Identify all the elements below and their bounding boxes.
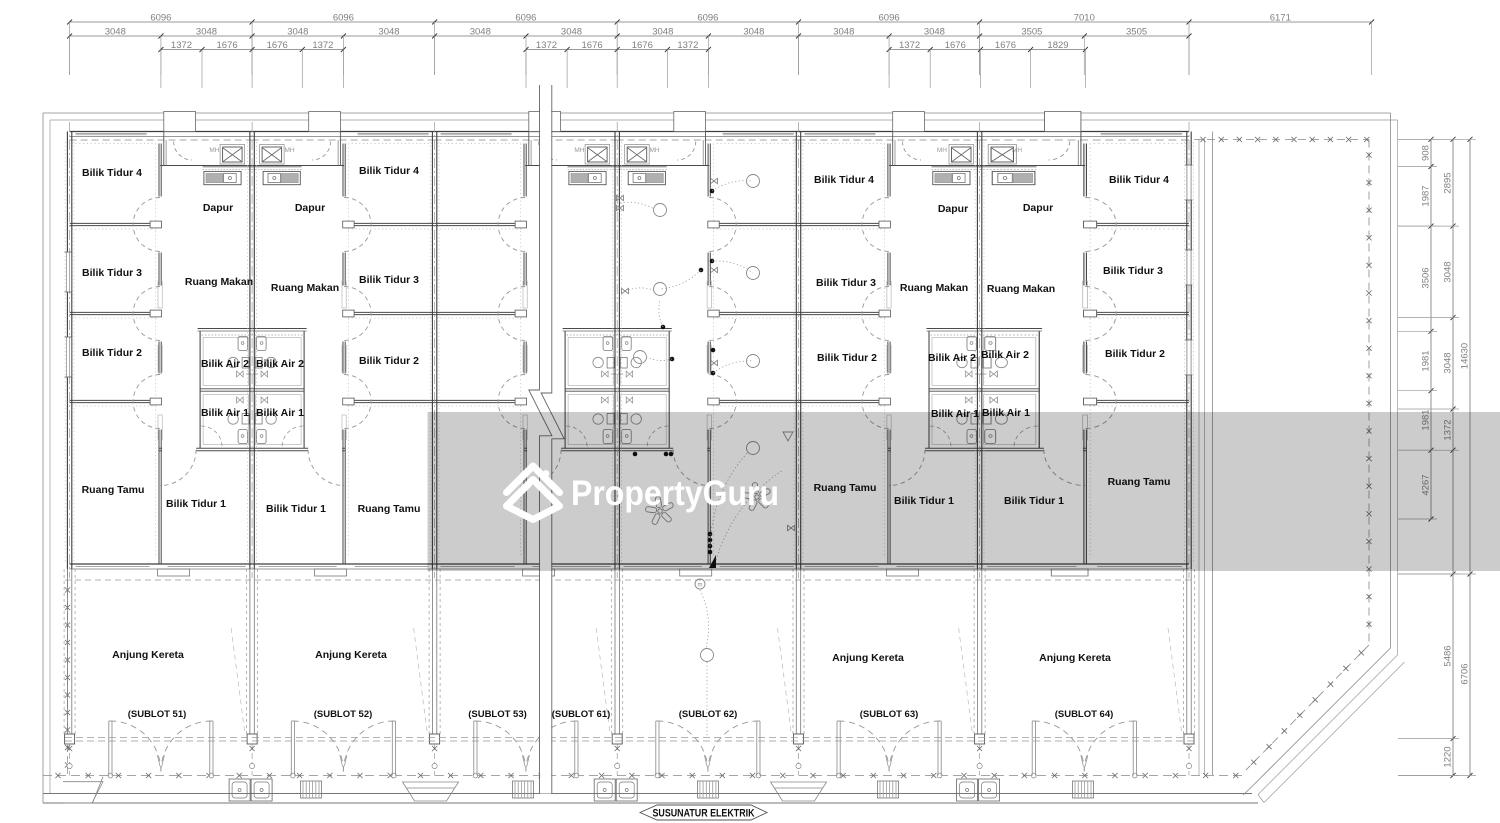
svg-text:1220: 1220 bbox=[1443, 746, 1454, 767]
svg-text:1676: 1676 bbox=[267, 40, 288, 51]
svg-text:3048: 3048 bbox=[196, 27, 217, 38]
svg-text:3048: 3048 bbox=[470, 27, 491, 38]
svg-text:2895: 2895 bbox=[1443, 172, 1454, 193]
svg-text:Bilik Tidur 1: Bilik Tidur 1 bbox=[266, 503, 326, 515]
svg-text:6706: 6706 bbox=[1460, 663, 1471, 684]
svg-text:Bilik Tidur 4: Bilik Tidur 4 bbox=[359, 165, 419, 177]
svg-text:6171: 6171 bbox=[1270, 13, 1291, 24]
svg-text:7010: 7010 bbox=[1074, 13, 1095, 24]
svg-text:1676: 1676 bbox=[995, 40, 1016, 51]
svg-text:PropertyGuru: PropertyGuru bbox=[571, 474, 779, 513]
svg-text:Bilik Tidur 2: Bilik Tidur 2 bbox=[1105, 348, 1165, 360]
svg-text:14630: 14630 bbox=[1460, 343, 1471, 369]
svg-text:Bilik Tidur 2: Bilik Tidur 2 bbox=[359, 355, 419, 367]
svg-text:(SUBLOT 62): (SUBLOT 62) bbox=[679, 709, 738, 720]
svg-text:Dapur: Dapur bbox=[203, 202, 233, 214]
svg-text:MH: MH bbox=[209, 147, 219, 154]
svg-text:Bilik Air 1: Bilik Air 1 bbox=[256, 407, 304, 419]
svg-text:3048: 3048 bbox=[561, 27, 582, 38]
svg-text:1372: 1372 bbox=[899, 40, 920, 51]
svg-text:1676: 1676 bbox=[217, 40, 238, 51]
svg-text:3048: 3048 bbox=[378, 27, 399, 38]
svg-text:(SUBLOT 64): (SUBLOT 64) bbox=[1055, 709, 1114, 720]
svg-text:Bilik Tidur 4: Bilik Tidur 4 bbox=[814, 174, 874, 186]
svg-text:Bilik Tidur 3: Bilik Tidur 3 bbox=[816, 277, 876, 289]
svg-text:SUSUNATUR ELEKTRIK: SUSUNATUR ELEKTRIK bbox=[653, 808, 756, 820]
svg-text:MH: MH bbox=[650, 147, 660, 154]
svg-text:3048: 3048 bbox=[924, 27, 945, 38]
svg-text:Bilik Tidur 1: Bilik Tidur 1 bbox=[166, 498, 226, 510]
svg-text:3048: 3048 bbox=[105, 27, 126, 38]
svg-text:3048: 3048 bbox=[1443, 352, 1454, 373]
svg-text:m: m bbox=[698, 583, 703, 589]
svg-text:6096: 6096 bbox=[697, 13, 718, 24]
svg-text:3048: 3048 bbox=[287, 27, 308, 38]
svg-text:Bilik Tidur 2: Bilik Tidur 2 bbox=[817, 352, 877, 364]
svg-text:Bilik Air 2: Bilik Air 2 bbox=[928, 352, 976, 364]
svg-text:Ruang Tamu: Ruang Tamu bbox=[358, 503, 421, 515]
svg-text:MH: MH bbox=[574, 147, 584, 154]
svg-text:1372: 1372 bbox=[312, 40, 333, 51]
svg-text:(SUBLOT 51): (SUBLOT 51) bbox=[128, 709, 187, 720]
svg-text:6096: 6096 bbox=[515, 13, 536, 24]
svg-text:(SUBLOT 63): (SUBLOT 63) bbox=[860, 709, 919, 720]
svg-text:Ruang Makan: Ruang Makan bbox=[900, 282, 968, 294]
svg-text:Ruang Makan: Ruang Makan bbox=[185, 276, 253, 288]
svg-text:MH: MH bbox=[937, 147, 947, 154]
svg-text:1987: 1987 bbox=[1421, 185, 1432, 206]
svg-text:Ruang Makan: Ruang Makan bbox=[987, 283, 1055, 295]
svg-text:1981: 1981 bbox=[1421, 350, 1432, 371]
svg-text:(SUBLOT 61): (SUBLOT 61) bbox=[552, 709, 611, 720]
svg-text:Anjung Kereta: Anjung Kereta bbox=[315, 649, 387, 661]
svg-text:Bilik Tidur 3: Bilik Tidur 3 bbox=[1103, 265, 1163, 277]
svg-text:1372: 1372 bbox=[536, 40, 557, 51]
svg-text:3048: 3048 bbox=[833, 27, 854, 38]
svg-text:1676: 1676 bbox=[945, 40, 966, 51]
svg-text:Bilik Tidur 3: Bilik Tidur 3 bbox=[359, 274, 419, 286]
svg-text:6096: 6096 bbox=[150, 13, 171, 24]
svg-text:1372: 1372 bbox=[677, 40, 698, 51]
svg-text:(SUBLOT 53): (SUBLOT 53) bbox=[468, 709, 527, 720]
svg-text:Bilik Tidur 4: Bilik Tidur 4 bbox=[82, 167, 142, 179]
svg-text:Bilik Air 1: Bilik Air 1 bbox=[201, 407, 249, 419]
svg-text:1829: 1829 bbox=[1047, 40, 1068, 51]
svg-text:Bilik Air 2: Bilik Air 2 bbox=[256, 358, 304, 370]
svg-text:1676: 1676 bbox=[582, 40, 603, 51]
svg-text:Bilik Air 2: Bilik Air 2 bbox=[201, 358, 249, 370]
svg-text:3048: 3048 bbox=[652, 27, 673, 38]
svg-text:Bilik Tidur 3: Bilik Tidur 3 bbox=[82, 267, 142, 279]
svg-text:Anjung Kereta: Anjung Kereta bbox=[832, 652, 904, 664]
svg-text:1372: 1372 bbox=[171, 40, 192, 51]
svg-text:Ruang Tamu: Ruang Tamu bbox=[82, 484, 145, 496]
svg-text:6096: 6096 bbox=[333, 13, 354, 24]
svg-text:Bilik Air 2: Bilik Air 2 bbox=[981, 349, 1029, 361]
svg-text:MH: MH bbox=[1012, 147, 1022, 154]
svg-text:Dapur: Dapur bbox=[295, 202, 325, 214]
svg-text:Dapur: Dapur bbox=[938, 203, 968, 215]
svg-text:5486: 5486 bbox=[1443, 645, 1454, 666]
svg-text:Anjung Kereta: Anjung Kereta bbox=[1039, 652, 1111, 664]
svg-text:Ruang Makan: Ruang Makan bbox=[271, 282, 339, 294]
svg-text:3506: 3506 bbox=[1421, 267, 1432, 288]
svg-text:3505: 3505 bbox=[1126, 27, 1147, 38]
svg-text:3048: 3048 bbox=[743, 27, 764, 38]
svg-text:3505: 3505 bbox=[1021, 27, 1042, 38]
svg-text:Dapur: Dapur bbox=[1023, 202, 1053, 214]
svg-text:Bilik Tidur 2: Bilik Tidur 2 bbox=[82, 347, 142, 359]
svg-text:Bilik Tidur 4: Bilik Tidur 4 bbox=[1109, 174, 1169, 186]
svg-text:6096: 6096 bbox=[879, 13, 900, 24]
svg-text:1676: 1676 bbox=[632, 40, 653, 51]
svg-text:MH: MH bbox=[285, 147, 295, 154]
svg-text:Anjung Kereta: Anjung Kereta bbox=[112, 649, 184, 661]
svg-text:3048: 3048 bbox=[1443, 261, 1454, 282]
svg-text:(SUBLOT 52): (SUBLOT 52) bbox=[314, 709, 373, 720]
svg-text:908: 908 bbox=[1421, 145, 1432, 161]
